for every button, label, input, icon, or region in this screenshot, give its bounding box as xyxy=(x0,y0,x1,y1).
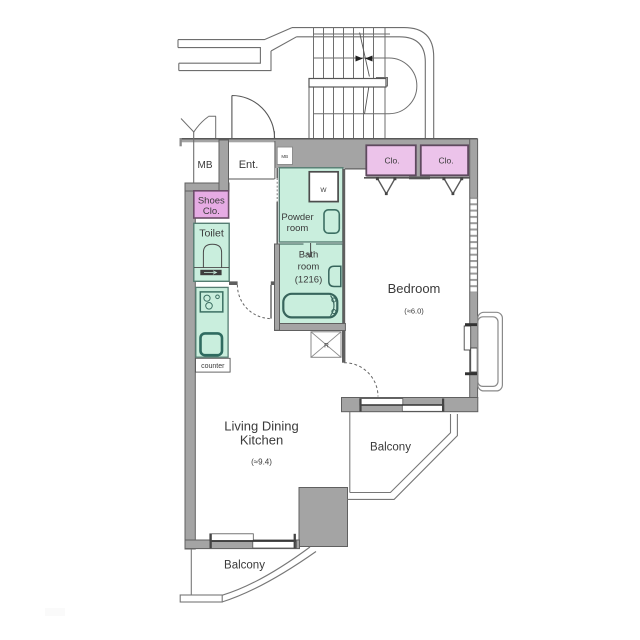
svg-text:Powder: Powder xyxy=(281,212,313,223)
svg-text:(≈9.4): (≈9.4) xyxy=(251,458,272,467)
svg-text:room: room xyxy=(287,223,309,234)
svg-text:R: R xyxy=(324,343,329,350)
svg-text:Ent.: Ent. xyxy=(239,159,259,171)
svg-text:Kitchen: Kitchen xyxy=(240,433,283,448)
svg-text:(1216): (1216) xyxy=(295,275,322,286)
svg-text:Living Dining: Living Dining xyxy=(224,419,298,434)
svg-text:Clo.: Clo. xyxy=(438,156,453,166)
svg-text:Balcony: Balcony xyxy=(224,560,265,572)
svg-text:Clo.: Clo. xyxy=(384,156,399,166)
svg-text:(≈6.0): (≈6.0) xyxy=(404,307,424,316)
svg-text:MB: MB xyxy=(198,160,213,171)
svg-text:Bedroom: Bedroom xyxy=(388,281,441,296)
svg-text:Clo.: Clo. xyxy=(203,206,220,217)
svg-text:Shoes: Shoes xyxy=(198,196,225,207)
svg-text:Balcony: Balcony xyxy=(370,442,411,454)
svg-text:MB: MB xyxy=(281,154,288,159)
svg-text:Toilet: Toilet xyxy=(199,228,224,240)
svg-text:counter: counter xyxy=(201,363,225,370)
svg-text:room: room xyxy=(298,262,320,273)
svg-text:W: W xyxy=(320,187,327,194)
